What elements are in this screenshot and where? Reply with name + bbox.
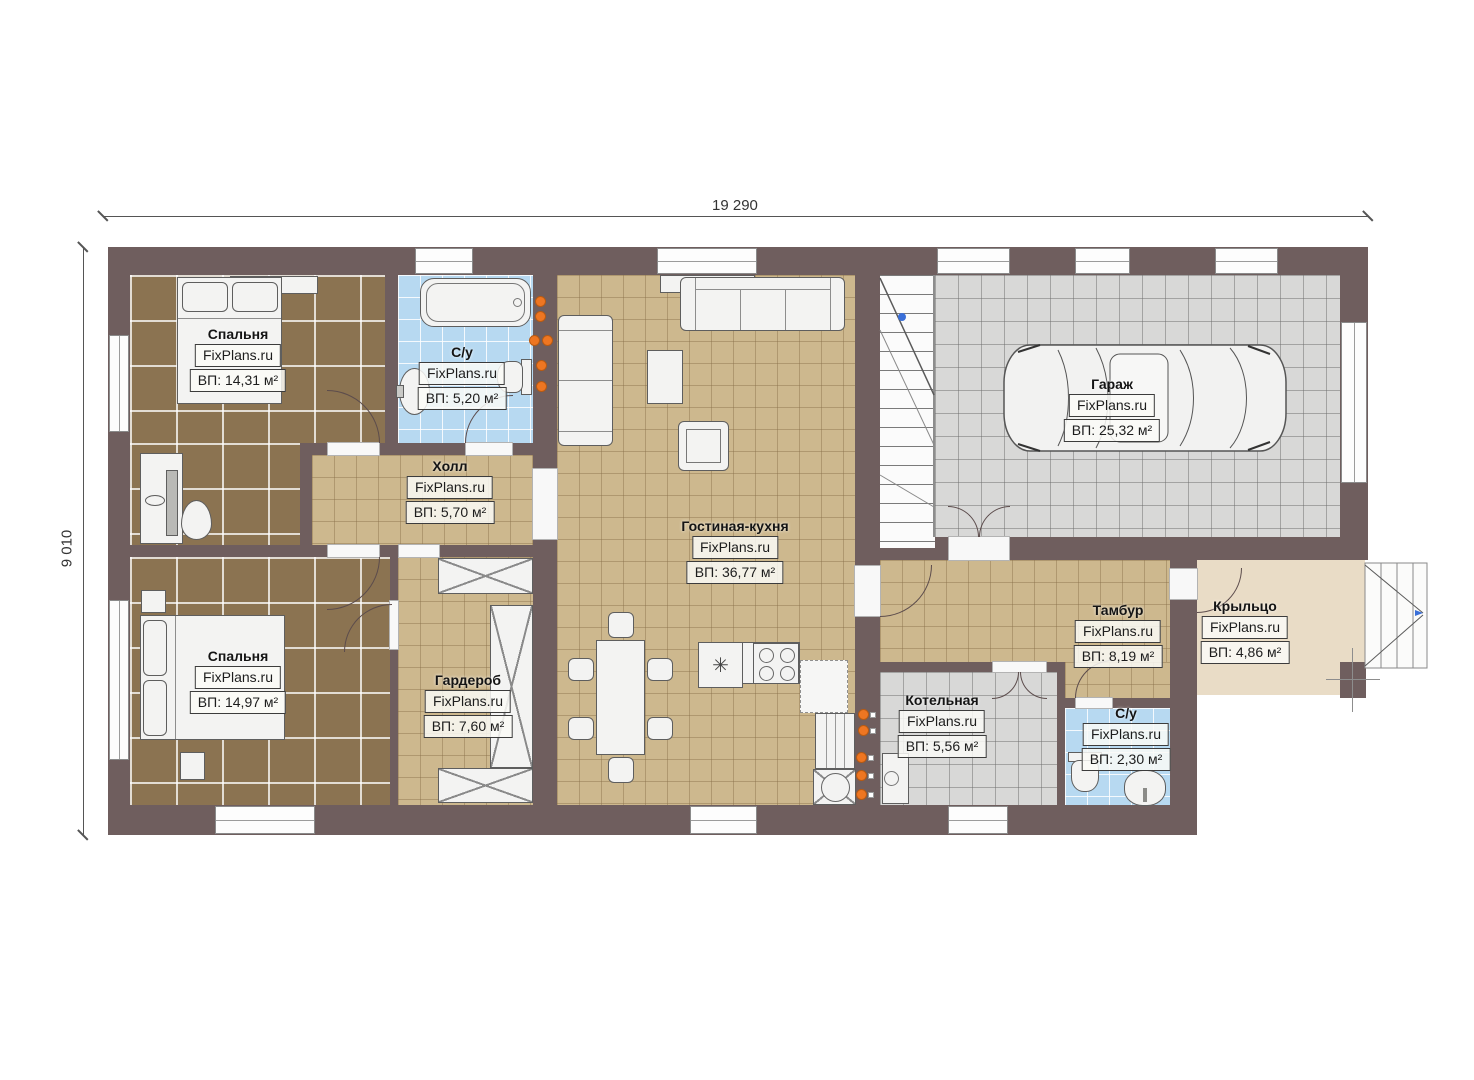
wall-boiler-bath2 (1057, 672, 1065, 805)
sofa-large-armrest-right (830, 278, 831, 330)
brand-watermark: FixPlans.ru (1202, 616, 1288, 639)
door-bedroom2-threshold (327, 544, 380, 558)
dimension-width-label: 19 290 (712, 197, 758, 214)
bath1-sink-tap (396, 385, 404, 398)
brand-watermark: FixPlans.ru (1083, 723, 1169, 746)
service-marker (535, 311, 546, 322)
room-label-hall: Холл FixPlans.ru ВП: 5,70 м² (406, 458, 495, 524)
floor-plan: 19 290 9 010 (0, 0, 1474, 1080)
bedroom1-blanket-line (178, 318, 281, 319)
room-name: Гараж (1091, 376, 1133, 392)
sofa-side-armrest-top (559, 330, 612, 331)
service-marker-square (870, 712, 876, 718)
room-label-bedroom1: Спальня FixPlans.ru ВП: 14,31 м² (190, 326, 286, 392)
brand-watermark: FixPlans.ru (1069, 394, 1155, 417)
room-label-tambour: Тамбур FixPlans.ru ВП: 8,19 м² (1074, 602, 1163, 668)
window-garage-top-3 (1215, 248, 1278, 274)
room-label-garage: Гараж FixPlans.ru ВП: 25,32 м² (1064, 376, 1160, 442)
room-label-bath1: С/у FixPlans.ru ВП: 5,20 м² (418, 344, 507, 410)
service-marker (536, 360, 547, 371)
coffee-table (647, 350, 683, 404)
window-garage-top-2 (1075, 248, 1130, 274)
service-marker (535, 296, 546, 307)
brand-watermark: FixPlans.ru (195, 666, 281, 689)
room-name: С/у (1115, 705, 1137, 721)
opening-hall-living (532, 468, 558, 540)
dimension-height-label: 9 010 (58, 530, 75, 568)
brand-watermark: FixPlans.ru (407, 476, 493, 499)
window-bedroom2-left (109, 600, 129, 760)
room-area: ВП: 5,70 м² (406, 501, 495, 524)
fridge (815, 713, 855, 769)
dimension-line-top (103, 216, 1368, 217)
wall-bedroom1-bath (385, 275, 398, 455)
door-bedroom1-threshold (327, 442, 380, 456)
service-marker (536, 381, 547, 392)
room-area: ВП: 14,97 м² (190, 691, 286, 714)
sofa-large-back-line (695, 289, 830, 290)
window-living-top (657, 248, 757, 274)
armchair-seat (686, 429, 721, 463)
window-bedroom2-bottom (215, 806, 315, 834)
brand-watermark: FixPlans.ru (195, 344, 281, 367)
room-label-living: Гостиная-кухня FixPlans.ru ВП: 36,77 м² (681, 518, 788, 584)
porch-column (1340, 662, 1366, 698)
bedroom1-monitor (145, 495, 165, 506)
bedroom2-pillow-1 (143, 620, 167, 676)
room-name: Спальня (208, 326, 268, 342)
bedroom2-blanket-line (175, 616, 176, 739)
room-name: Тамбур (1093, 602, 1144, 618)
bedroom1-chair (181, 500, 212, 540)
stove-burner-4 (780, 666, 795, 681)
bathtub-inner (426, 283, 525, 322)
porch-column-axis-h (1326, 679, 1380, 680)
dining-chair-right-2 (647, 717, 673, 740)
window-living-bottom (690, 806, 757, 834)
sofa-side-armrest-bottom (559, 431, 612, 432)
room-label-wardrobe: Гардероб FixPlans.ru ВП: 7,60 м² (424, 672, 513, 738)
opening-wardrobe (398, 544, 440, 558)
wall-tambour-right (1170, 560, 1197, 835)
brand-watermark: FixPlans.ru (899, 710, 985, 733)
room-area: ВП: 5,56 м² (898, 735, 987, 758)
room-area: ВП: 4,86 м² (1201, 641, 1290, 664)
bath2-sink-tap (1143, 788, 1147, 802)
wall-hall-left (300, 443, 312, 557)
door-garage-tambour-threshold (948, 536, 1010, 561)
room-area: ВП: 7,60 м² (424, 715, 513, 738)
window-bedroom1-left (109, 335, 129, 432)
stove-burner-2 (780, 648, 795, 663)
door-living-tambour-threshold (854, 565, 881, 617)
dining-chair-bottom (608, 757, 634, 783)
service-marker (856, 789, 867, 800)
sofa-large (680, 277, 845, 331)
sofa-large-divider-1 (740, 290, 741, 330)
bedroom2-stool (180, 752, 205, 780)
bedroom1-pillow-2 (232, 282, 278, 312)
garage-gate (1341, 322, 1367, 483)
wardrobe-unit-top (438, 558, 533, 594)
sofa-large-armrest-left (695, 278, 696, 330)
service-marker-square (868, 755, 874, 761)
door-porch-threshold (1169, 568, 1198, 600)
bedroom2-pillow-2 (143, 680, 167, 736)
stove-burner-1 (759, 648, 774, 663)
room-area: ВП: 5,20 м² (418, 387, 507, 410)
room-area: ВП: 36,77 м² (687, 561, 783, 584)
service-marker (858, 709, 869, 720)
dining-chair-left-2 (568, 717, 594, 740)
stair-direction-marker (898, 313, 906, 321)
room-area: ВП: 8,19 м² (1074, 645, 1163, 668)
dining-chair-left-1 (568, 658, 594, 681)
room-area: ВП: 25,32 м² (1064, 419, 1160, 442)
room-label-bedroom2: Спальня FixPlans.ru ВП: 14,97 м² (190, 648, 286, 714)
service-marker (529, 335, 540, 346)
window-garage-top-1 (937, 248, 1010, 274)
dining-chair-right-1 (647, 658, 673, 681)
brand-watermark: FixPlans.ru (419, 362, 505, 385)
room-name: Спальня (208, 648, 268, 664)
porch-steps (1365, 563, 1427, 668)
service-marker (856, 770, 867, 781)
service-marker (856, 752, 867, 763)
boiler-burner (884, 771, 899, 786)
window-bath1-top (415, 248, 473, 274)
service-marker-square (868, 792, 874, 798)
washing-machine-drum (821, 773, 850, 802)
sofa-large-divider-2 (785, 290, 786, 330)
kitchen-sink-unit: ✳ (698, 642, 743, 688)
brand-watermark: FixPlans.ru (425, 690, 511, 713)
door-bath1-threshold (465, 442, 513, 456)
room-name: Котельная (905, 692, 978, 708)
room-label-boiler: Котельная FixPlans.ru ВП: 5,56 м² (898, 692, 987, 758)
service-marker-square (868, 773, 874, 779)
room-area: ВП: 14,31 м² (190, 369, 286, 392)
staircase-details (880, 275, 935, 548)
window-boiler-bottom (948, 806, 1008, 834)
bathtub-drain (513, 298, 522, 307)
stove-burner-3 (759, 666, 774, 681)
dining-table (596, 640, 645, 755)
room-name: С/у (451, 344, 473, 360)
porch-column-axis-v (1352, 648, 1353, 712)
service-marker (858, 725, 869, 736)
sofa-side-divider (559, 380, 612, 381)
room-label-porch: Крыльцо FixPlans.ru ВП: 4,86 м² (1201, 598, 1290, 664)
room-name: Холл (432, 458, 467, 474)
room-area: ВП: 2,30 м² (1082, 748, 1171, 771)
sink-icon: ✳ (712, 653, 729, 678)
brand-watermark: FixPlans.ru (1075, 620, 1161, 643)
room-name: Крыльцо (1213, 598, 1277, 614)
wall-bath1-living (533, 275, 557, 805)
bedroom1-pillow-1 (182, 282, 228, 312)
room-name: Гостиная-кухня (681, 518, 788, 534)
brand-watermark: FixPlans.ru (692, 536, 778, 559)
wall-stair-bottom (880, 548, 935, 560)
bedroom1-pc-tower (166, 470, 178, 536)
service-marker (542, 335, 553, 346)
service-marker-square (870, 728, 876, 734)
dimension-line-left (83, 247, 84, 835)
room-name: Гардероб (435, 672, 501, 688)
wall-wardrobe-left (390, 557, 398, 805)
room-label-bath2: С/у FixPlans.ru ВП: 2,30 м² (1082, 705, 1171, 771)
wardrobe-unit-bottom (438, 768, 533, 803)
dining-chair-top (608, 612, 634, 638)
bedroom2-nightstand (141, 590, 166, 613)
kitchen-upper-cabinet (800, 660, 848, 713)
